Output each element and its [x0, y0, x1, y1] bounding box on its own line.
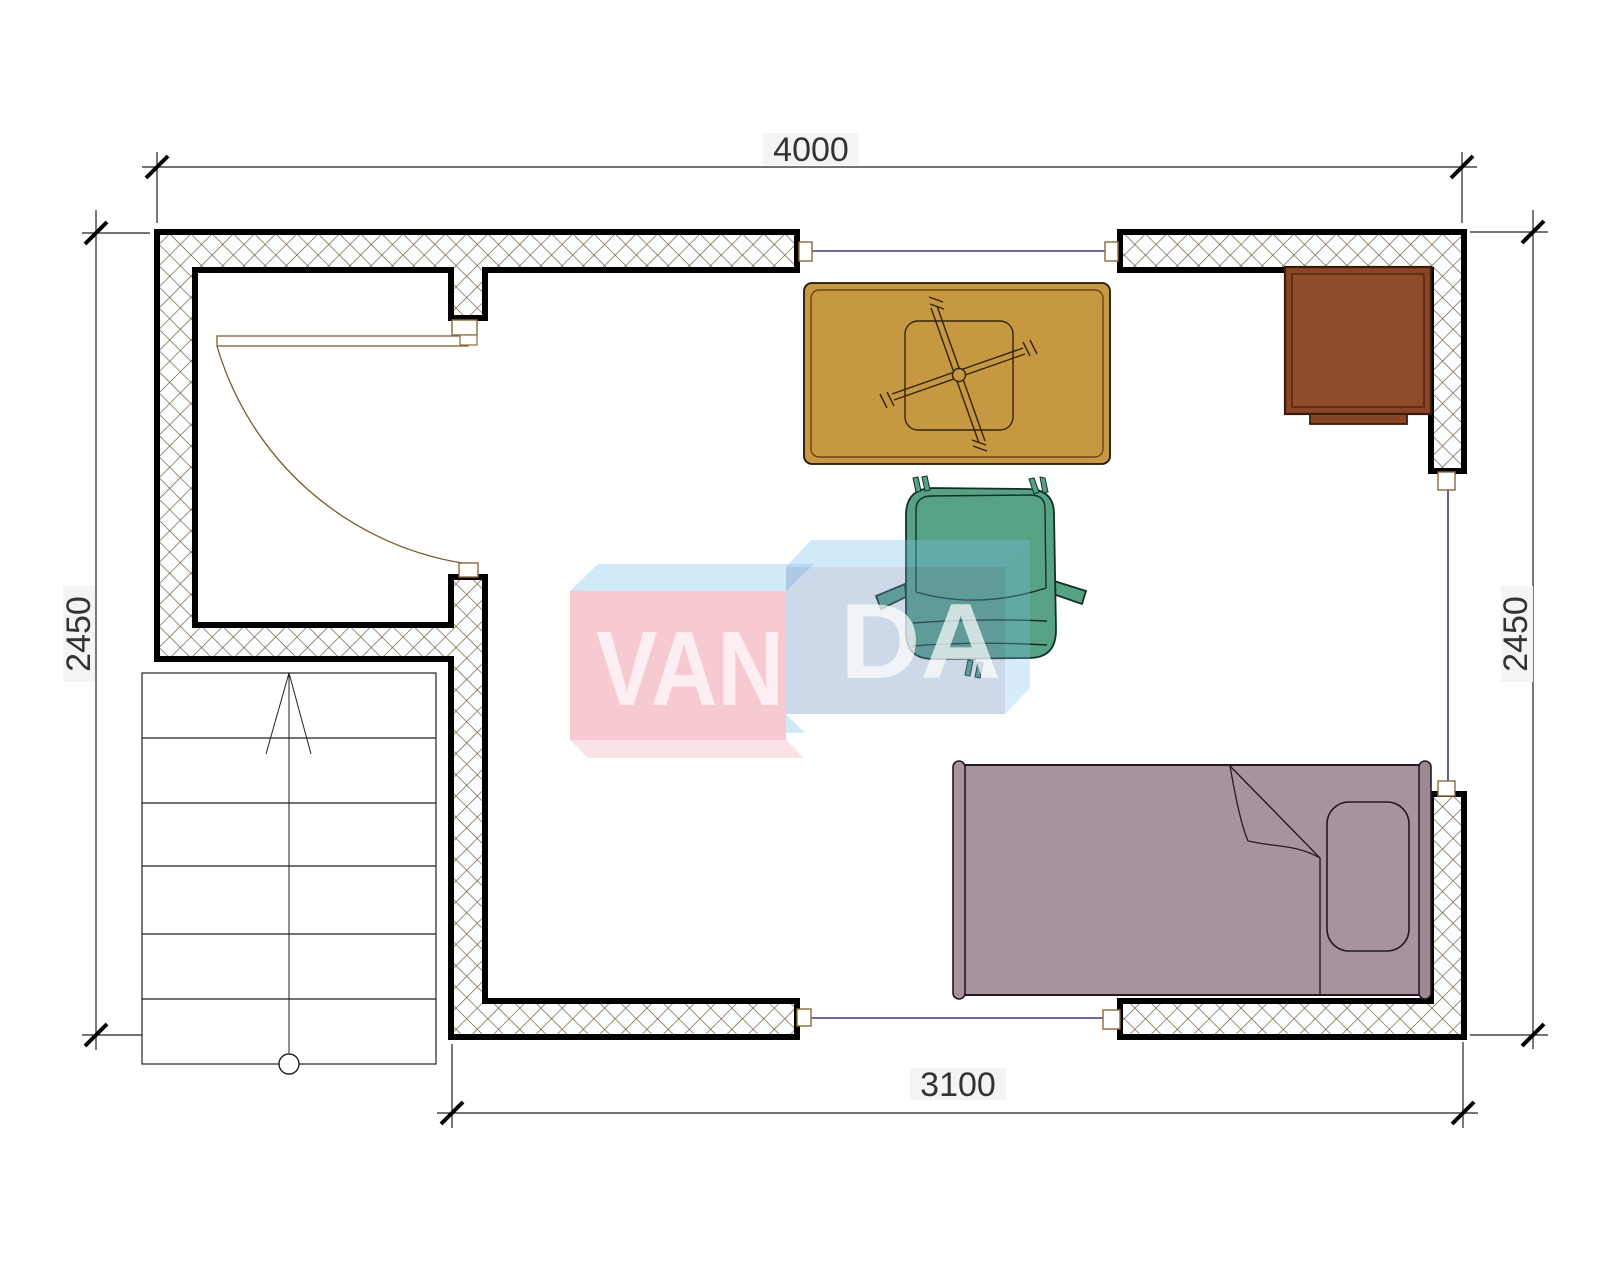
svg-text:VAN: VAN — [596, 610, 784, 728]
svg-text:2450: 2450 — [60, 596, 98, 672]
svg-text:DA: DA — [840, 581, 1001, 701]
svg-text:4000: 4000 — [773, 131, 849, 169]
svg-text:2450: 2450 — [1497, 596, 1535, 672]
svg-text:3100: 3100 — [920, 1066, 996, 1104]
